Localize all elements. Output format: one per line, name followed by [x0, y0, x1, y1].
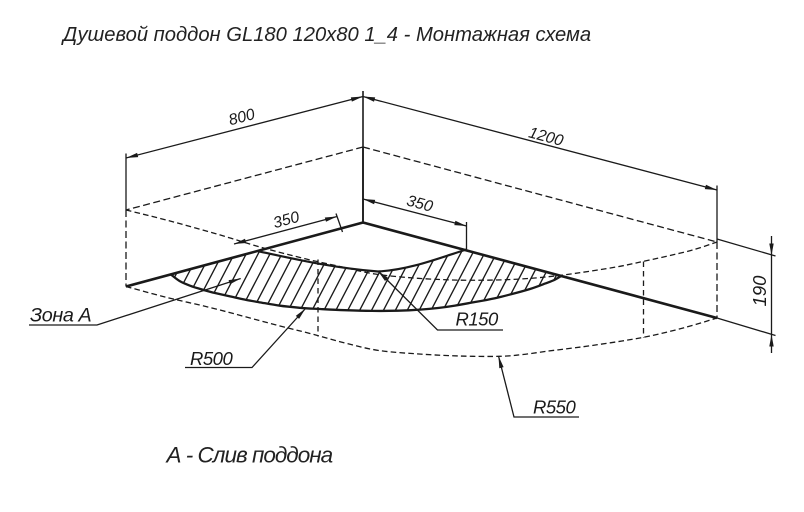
svg-text:А - Слив поддона: А - Слив поддона — [165, 442, 333, 467]
svg-text:Зона А: Зона А — [30, 304, 92, 326]
svg-text:Душевой поддон GL180 120х80 1_: Душевой поддон GL180 120х80 1_4 - Монтаж… — [61, 24, 591, 46]
svg-text:190: 190 — [749, 275, 770, 307]
svg-text:R550: R550 — [533, 396, 576, 417]
svg-text:R150: R150 — [456, 308, 499, 329]
svg-text:R500: R500 — [190, 348, 233, 369]
